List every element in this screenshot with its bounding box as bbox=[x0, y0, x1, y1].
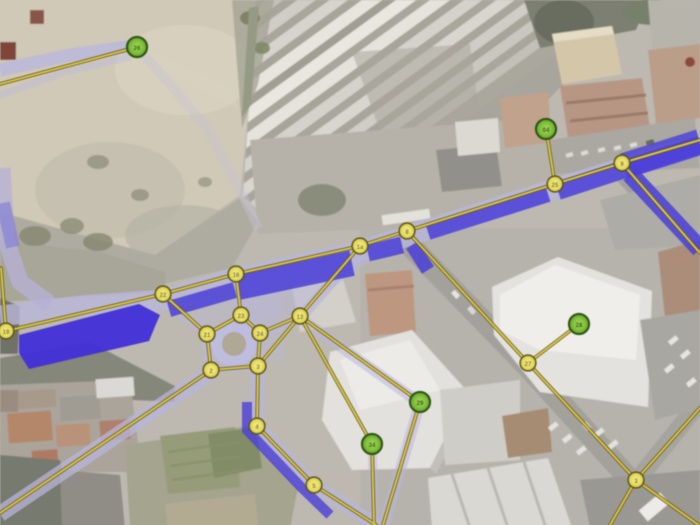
svg-text:28: 28 bbox=[576, 323, 583, 329]
svg-text:27: 27 bbox=[525, 362, 532, 368]
svg-text:1a: 1a bbox=[357, 245, 364, 251]
svg-text:04: 04 bbox=[543, 128, 550, 134]
svg-text:23: 23 bbox=[238, 314, 245, 320]
svg-text:16: 16 bbox=[233, 273, 240, 279]
svg-text:29: 29 bbox=[417, 401, 424, 407]
svg-text:22: 22 bbox=[160, 293, 167, 299]
svg-text:13: 13 bbox=[297, 315, 304, 321]
svg-text:25: 25 bbox=[552, 183, 559, 189]
svg-text:34: 34 bbox=[369, 443, 376, 449]
svg-text:24: 24 bbox=[257, 332, 264, 338]
svg-text:19: 19 bbox=[3, 330, 10, 336]
svg-text:26: 26 bbox=[134, 46, 141, 52]
svg-text:21: 21 bbox=[204, 333, 211, 339]
